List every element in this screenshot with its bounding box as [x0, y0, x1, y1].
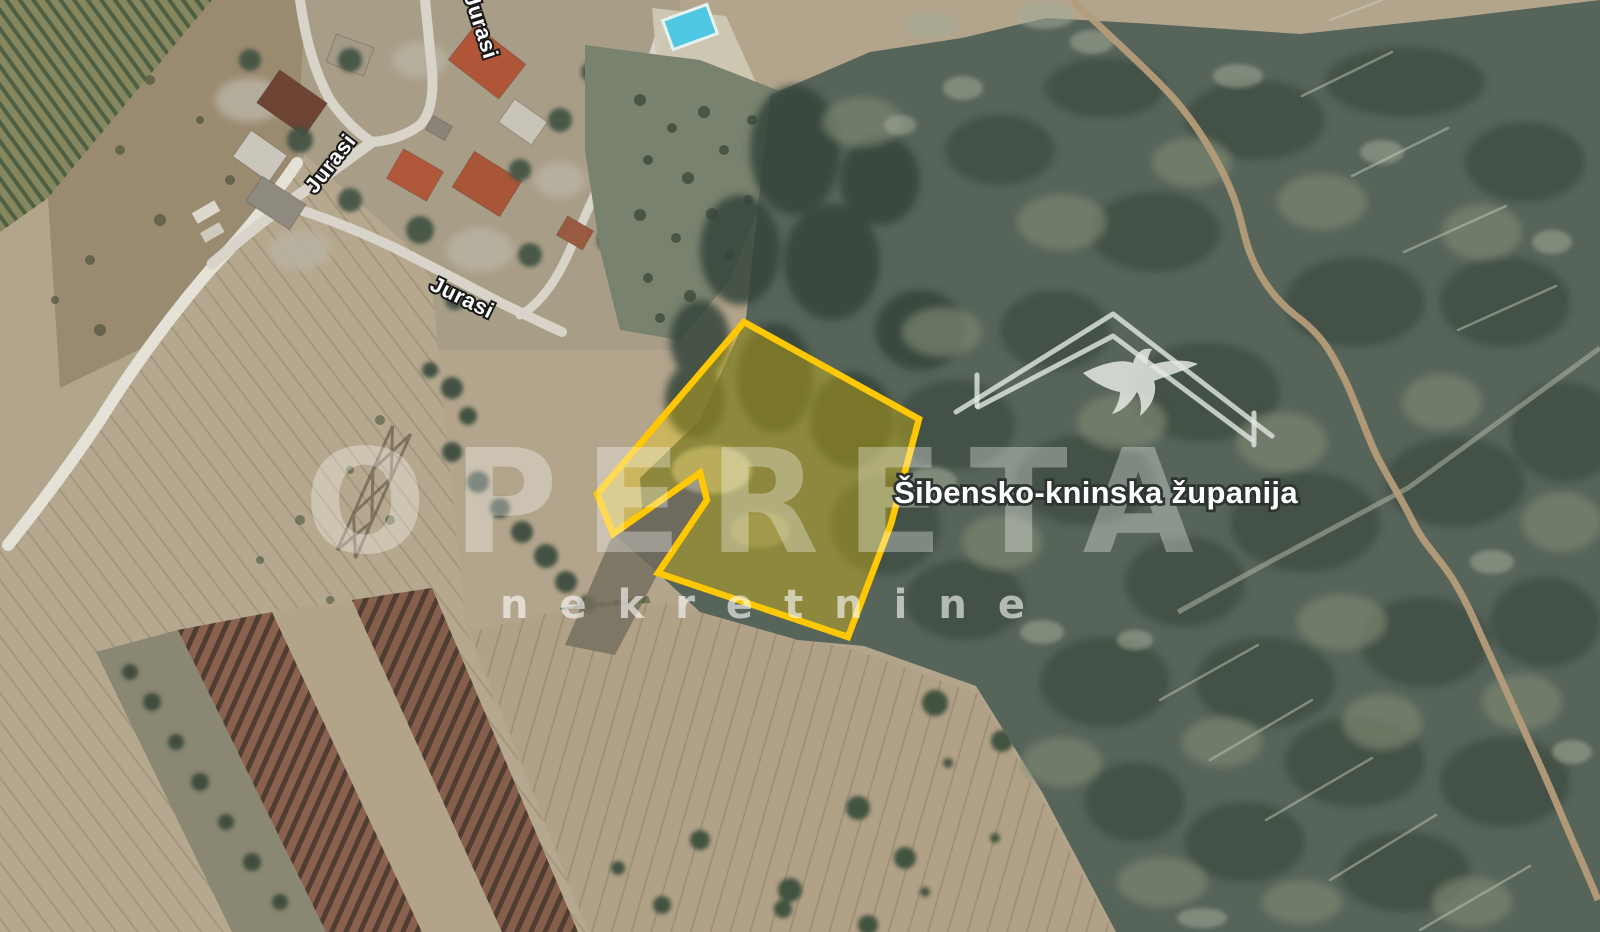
region-label: Šibensko-kninska županija [894, 474, 1298, 510]
watermark-subtitle-text: nekretnine [500, 582, 1056, 628]
satellite-map-view[interactable]: OPERETA nekretnine Jurasi Jurasi Jurasi … [0, 0, 1600, 932]
